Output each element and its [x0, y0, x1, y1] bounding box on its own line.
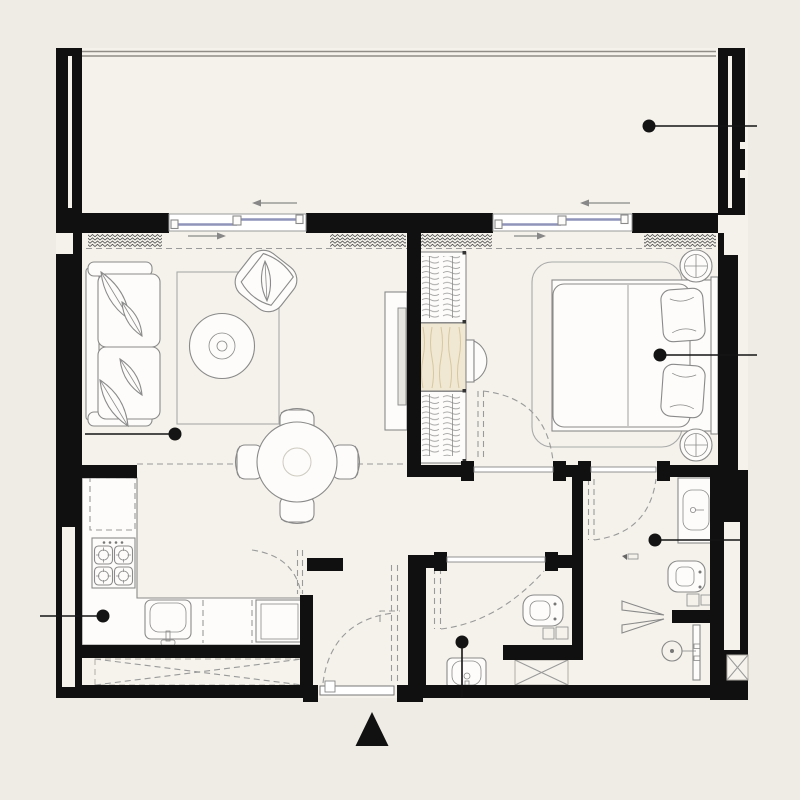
bottom-wall-left [56, 685, 318, 698]
washbasin [447, 658, 486, 689]
curtain-hatch [88, 234, 162, 247]
tv [398, 308, 406, 405]
shaft-x-box [515, 660, 568, 685]
bedroom-marker-dot[interactable] [654, 349, 667, 362]
balcony-marker-dot[interactable] [643, 120, 656, 133]
bottom-wall-right [397, 685, 748, 698]
window-band-wall [82, 213, 169, 233]
sliding-door-right[interactable] [493, 214, 632, 231]
living-bedroom-wall [407, 233, 421, 477]
wall-recess [62, 527, 75, 687]
kitchen-sink [145, 600, 191, 645]
wall-notch [724, 233, 738, 255]
window-band-wall [632, 213, 718, 233]
bath-ensuite-wall [572, 477, 583, 660]
bedside-table-top [680, 250, 712, 282]
vanity-sink [678, 478, 712, 543]
round-coffee-table [190, 314, 255, 379]
kitchen-bottom-wall [82, 645, 313, 658]
bathroom-marker-dot[interactable] [456, 636, 469, 649]
hall-top-stub [307, 558, 343, 571]
floor-plan-svg [0, 0, 800, 800]
shower-screen [693, 625, 700, 680]
bedroom [415, 250, 718, 463]
entrance-arrow-icon [356, 712, 389, 746]
kitchen-marker-dot[interactable] [97, 610, 110, 623]
bedroom-door-closed[interactable] [474, 467, 553, 472]
curtain-hatch [330, 234, 406, 247]
sliding-door-left[interactable] [169, 214, 306, 231]
living-room-marker-dot[interactable] [169, 428, 182, 441]
curtain-hatch [420, 234, 492, 247]
kitchen-top-wall [82, 465, 137, 478]
right-exterior-wall [718, 233, 738, 470]
ensuite-marker-dot[interactable] [649, 534, 662, 547]
pillow [660, 288, 706, 343]
wall-recess [724, 522, 740, 650]
bathroom-left-wall [408, 555, 426, 698]
shower-stub-wall [672, 610, 711, 623]
shaft-strip [95, 659, 302, 685]
pillow [660, 364, 706, 419]
window-band-wall [306, 213, 493, 233]
floor-plan-canvas [0, 0, 800, 800]
tv-console [385, 292, 407, 430]
sofa [86, 262, 160, 426]
ensuite-door-closed[interactable] [591, 467, 656, 472]
wall-notch [56, 233, 73, 254]
stove [92, 538, 135, 588]
bathroom-door-closed[interactable] [447, 557, 545, 562]
bedside-table-bottom [680, 429, 712, 461]
dining-table [257, 422, 337, 502]
wall-shaft-x-box [727, 655, 748, 680]
curtain-hatch [644, 234, 716, 247]
hall-left-wall [300, 595, 313, 698]
bathroom-niche-wall [503, 645, 583, 660]
